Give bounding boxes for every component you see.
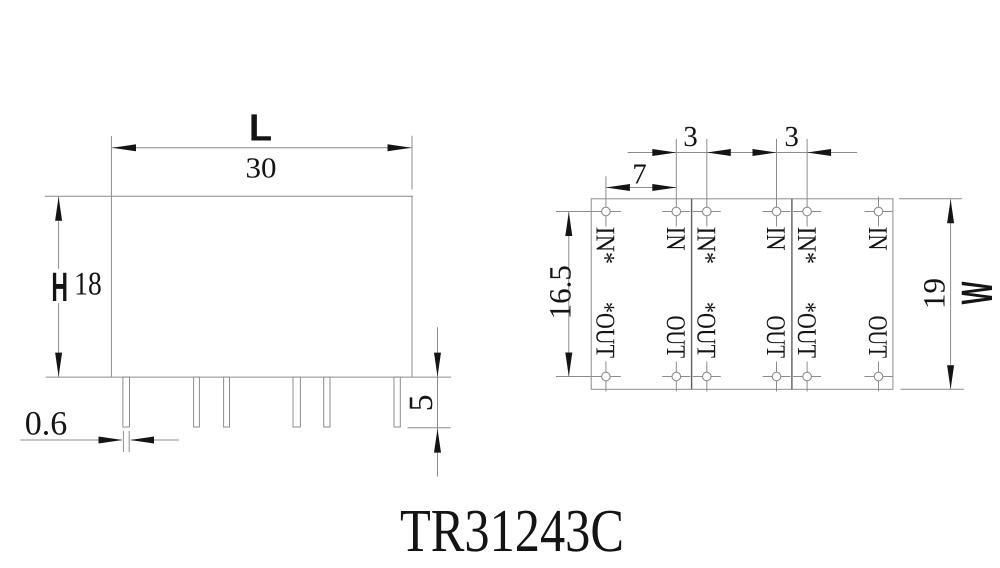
svg-text:16.5: 16.5: [543, 265, 578, 319]
svg-text:OUT: OUT: [863, 316, 893, 359]
svg-text:IN: IN: [661, 227, 691, 251]
svg-text:7: 7: [632, 159, 647, 191]
svg-text:H: H: [51, 264, 68, 310]
svg-text:3: 3: [784, 121, 799, 153]
svg-text:IN: IN: [761, 227, 791, 251]
svg-text:5: 5: [403, 394, 440, 411]
svg-text:TR31243C: TR31243C: [400, 498, 624, 565]
svg-text:0.6: 0.6: [25, 406, 68, 443]
svg-text:IN*: IN*: [792, 227, 822, 265]
svg-text:*OUT: *OUT: [792, 302, 822, 358]
svg-text:IN*: IN*: [591, 227, 621, 265]
svg-text:IN: IN: [863, 227, 893, 251]
svg-text:*OUT: *OUT: [591, 302, 621, 358]
svg-text:OUT: OUT: [761, 316, 791, 359]
svg-text:3: 3: [683, 121, 698, 153]
svg-text:30: 30: [246, 153, 277, 185]
svg-text:*OUT: *OUT: [692, 302, 722, 358]
svg-text:18: 18: [74, 267, 102, 303]
svg-text:19: 19: [917, 278, 952, 309]
svg-text:W: W: [953, 281, 1000, 304]
svg-text:L: L: [249, 108, 272, 150]
svg-text:OUT: OUT: [661, 316, 691, 359]
svg-text:IN*: IN*: [692, 227, 722, 265]
